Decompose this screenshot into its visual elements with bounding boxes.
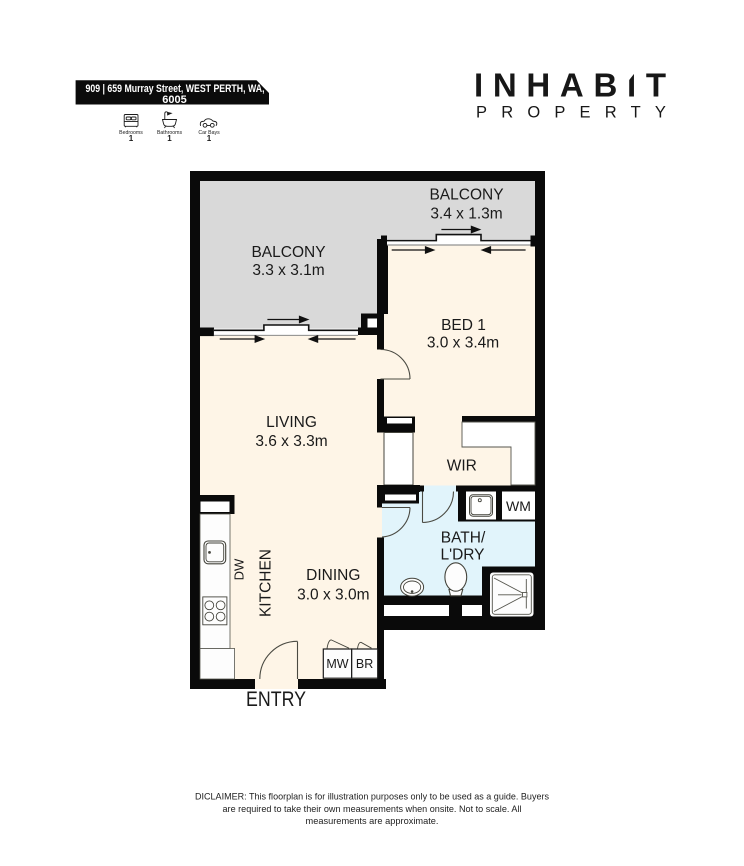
svg-text:1: 1 [129,134,134,143]
svg-text:DICLAIMER: This floorplan is f: DICLAIMER: This floorplan is for illustr… [195,792,549,803]
svg-text:INHABIT: INHABIT [474,67,676,104]
svg-text:1: 1 [207,134,212,143]
svg-text:3.0 x 3.4m: 3.0 x 3.4m [427,335,499,352]
svg-text:3.0 x 3.0m: 3.0 x 3.0m [297,587,369,604]
svg-text:WM: WM [506,498,531,514]
svg-text:DINING: DINING [306,567,360,584]
svg-text:BALCONY: BALCONY [251,244,325,261]
svg-text:6005: 6005 [162,94,186,106]
svg-text:3.4 x 1.3m: 3.4 x 1.3m [430,206,502,223]
svg-text:BATH/: BATH/ [441,530,486,547]
svg-text:DW: DW [232,558,247,580]
svg-text:3.3 x 3.1m: 3.3 x 3.1m [252,262,324,279]
svg-text:BALCONY: BALCONY [429,187,503,204]
svg-text:BR: BR [356,657,373,671]
svg-text:1: 1 [167,134,172,143]
svg-text:L'DRY: L'DRY [440,547,484,564]
svg-text:ENTRY: ENTRY [246,688,306,711]
svg-text:measurements are approximate.: measurements are approximate. [306,816,439,827]
svg-text:LIVING: LIVING [266,414,317,431]
svg-text:BED 1: BED 1 [441,317,486,334]
svg-text:KITCHEN: KITCHEN [258,549,275,617]
svg-text:MW: MW [326,657,348,671]
svg-text:are required to take their own: are required to take their own measureme… [223,804,522,815]
svg-text:WIR: WIR [447,457,477,474]
svg-text:3.6 x 3.3m: 3.6 x 3.3m [255,433,327,450]
svg-text:PROPERTY: PROPERTY [476,104,680,122]
